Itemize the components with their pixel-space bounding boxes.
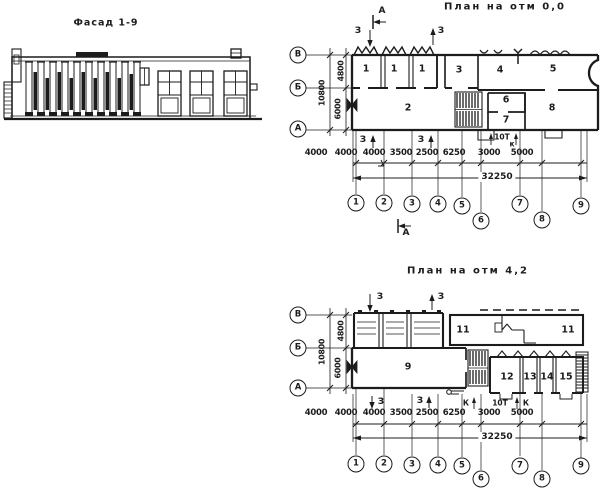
plan-42-title: План на отм 4,2 [407,266,529,277]
row-axis-circle: В [290,47,307,64]
dim-label: 2500 [416,148,438,158]
room-number: 14 [540,372,553,383]
row-axis-circle: А [290,380,307,397]
room-number: 11 [456,325,469,336]
section-mark-z: З [355,26,361,36]
room-number: 2 [405,103,412,114]
room-number: 11 [561,325,574,336]
room-number: 3 [456,65,463,76]
dim-label: 4000 [305,408,327,418]
column-axis-circle: 1 [348,195,365,212]
dim-label: 3500 [390,408,412,418]
room-number: 8 [549,103,556,114]
vertical-dim-label: 4800 [337,60,346,81]
vertical-dim-label: 4800 [337,320,346,341]
column-axis-circle: 6 [473,471,490,488]
dim-label: 4000 [363,408,385,418]
column-axis-circle: 2 [376,456,393,473]
section-mark-z: З [360,135,366,145]
column-axis-circle: 4 [430,196,447,213]
drawing-linework [0,0,604,499]
room-number: 1 [419,64,426,75]
total-dim-label: 32250 [478,432,515,442]
column-axis-circle: 8 [534,212,551,229]
dim-label: 5000 [511,148,533,158]
dim-label: 4000 [335,408,357,418]
hoist-label: 10Т [494,133,510,142]
dim-label: 3000 [478,408,500,418]
vertical-dim-label: 6000 [334,357,343,378]
facade-drawing [4,49,262,119]
room-number: 12 [500,372,513,383]
dim-label: 5000 [511,408,533,418]
dim-label: 4000 [335,148,357,158]
column-axis-circle: 1 [348,456,365,473]
column-axis-circle: 5 [454,198,471,215]
hoist-label: 10Т [492,399,508,408]
dim-label: 4000 [363,148,385,158]
column-axis-circle: 8 [534,471,551,488]
dim-label: 3500 [390,148,412,158]
section-mark-k: К [463,399,469,408]
room-number: 5 [550,64,557,75]
room-number: 6 [503,95,510,106]
vertical-dim-label: 10800 [318,80,327,106]
row-axis-circle: Б [290,80,307,97]
total-dim-label: 32250 [478,172,515,182]
section-mark-z: З [417,396,423,406]
row-axis-circle: В [290,307,307,324]
column-axis-circle: 6 [473,213,490,230]
row-axis-circle: Б [290,340,307,357]
column-axis-circle: 9 [573,458,590,475]
dim-label: 6250 [443,408,465,418]
dim-label: 6250 [443,148,465,158]
room-number: 15 [559,372,572,383]
column-axis-circle: 4 [430,457,447,474]
column-axis-circle: 7 [512,458,529,475]
room-number: 4 [497,65,504,76]
section-mark-z: З [438,292,444,302]
plan-0-title: План на отм 0,0 [444,2,566,13]
section-mark-z: З [378,397,384,407]
room-number: 13 [523,372,536,383]
column-axis-circle: 5 [454,458,471,475]
room-number: 1 [391,64,398,75]
section-mark-z: З [438,26,444,36]
facade-title: Фасад 1-9 [73,18,138,29]
room-number: 9 [405,362,412,373]
column-axis-circle: 7 [512,196,529,213]
dim-label: 3000 [478,148,500,158]
dim-label: 4000 [305,148,327,158]
column-axis-circle: 3 [404,457,421,474]
drawing-sheet: Фасад 1-9 План на отм 0,0 План на отм 4,… [0,0,604,499]
dim-label: 2500 [416,408,438,418]
section-mark-k: к [509,140,514,149]
vertical-dim-label: 10800 [318,339,327,365]
section-mark-z: З [418,135,424,145]
column-axis-circle: 9 [573,198,590,215]
column-axis-circle: 2 [376,195,393,212]
section-mark-a: А [403,228,410,238]
vertical-dim-label: 6000 [334,98,343,119]
room-number: 1 [363,64,370,75]
row-axis-circle: А [290,121,307,138]
section-mark-k: К [523,399,529,408]
room-number: 7 [503,115,510,126]
section-mark-a: А [379,6,386,16]
column-axis-circle: 3 [404,196,421,213]
section-mark-z: З [377,292,383,302]
